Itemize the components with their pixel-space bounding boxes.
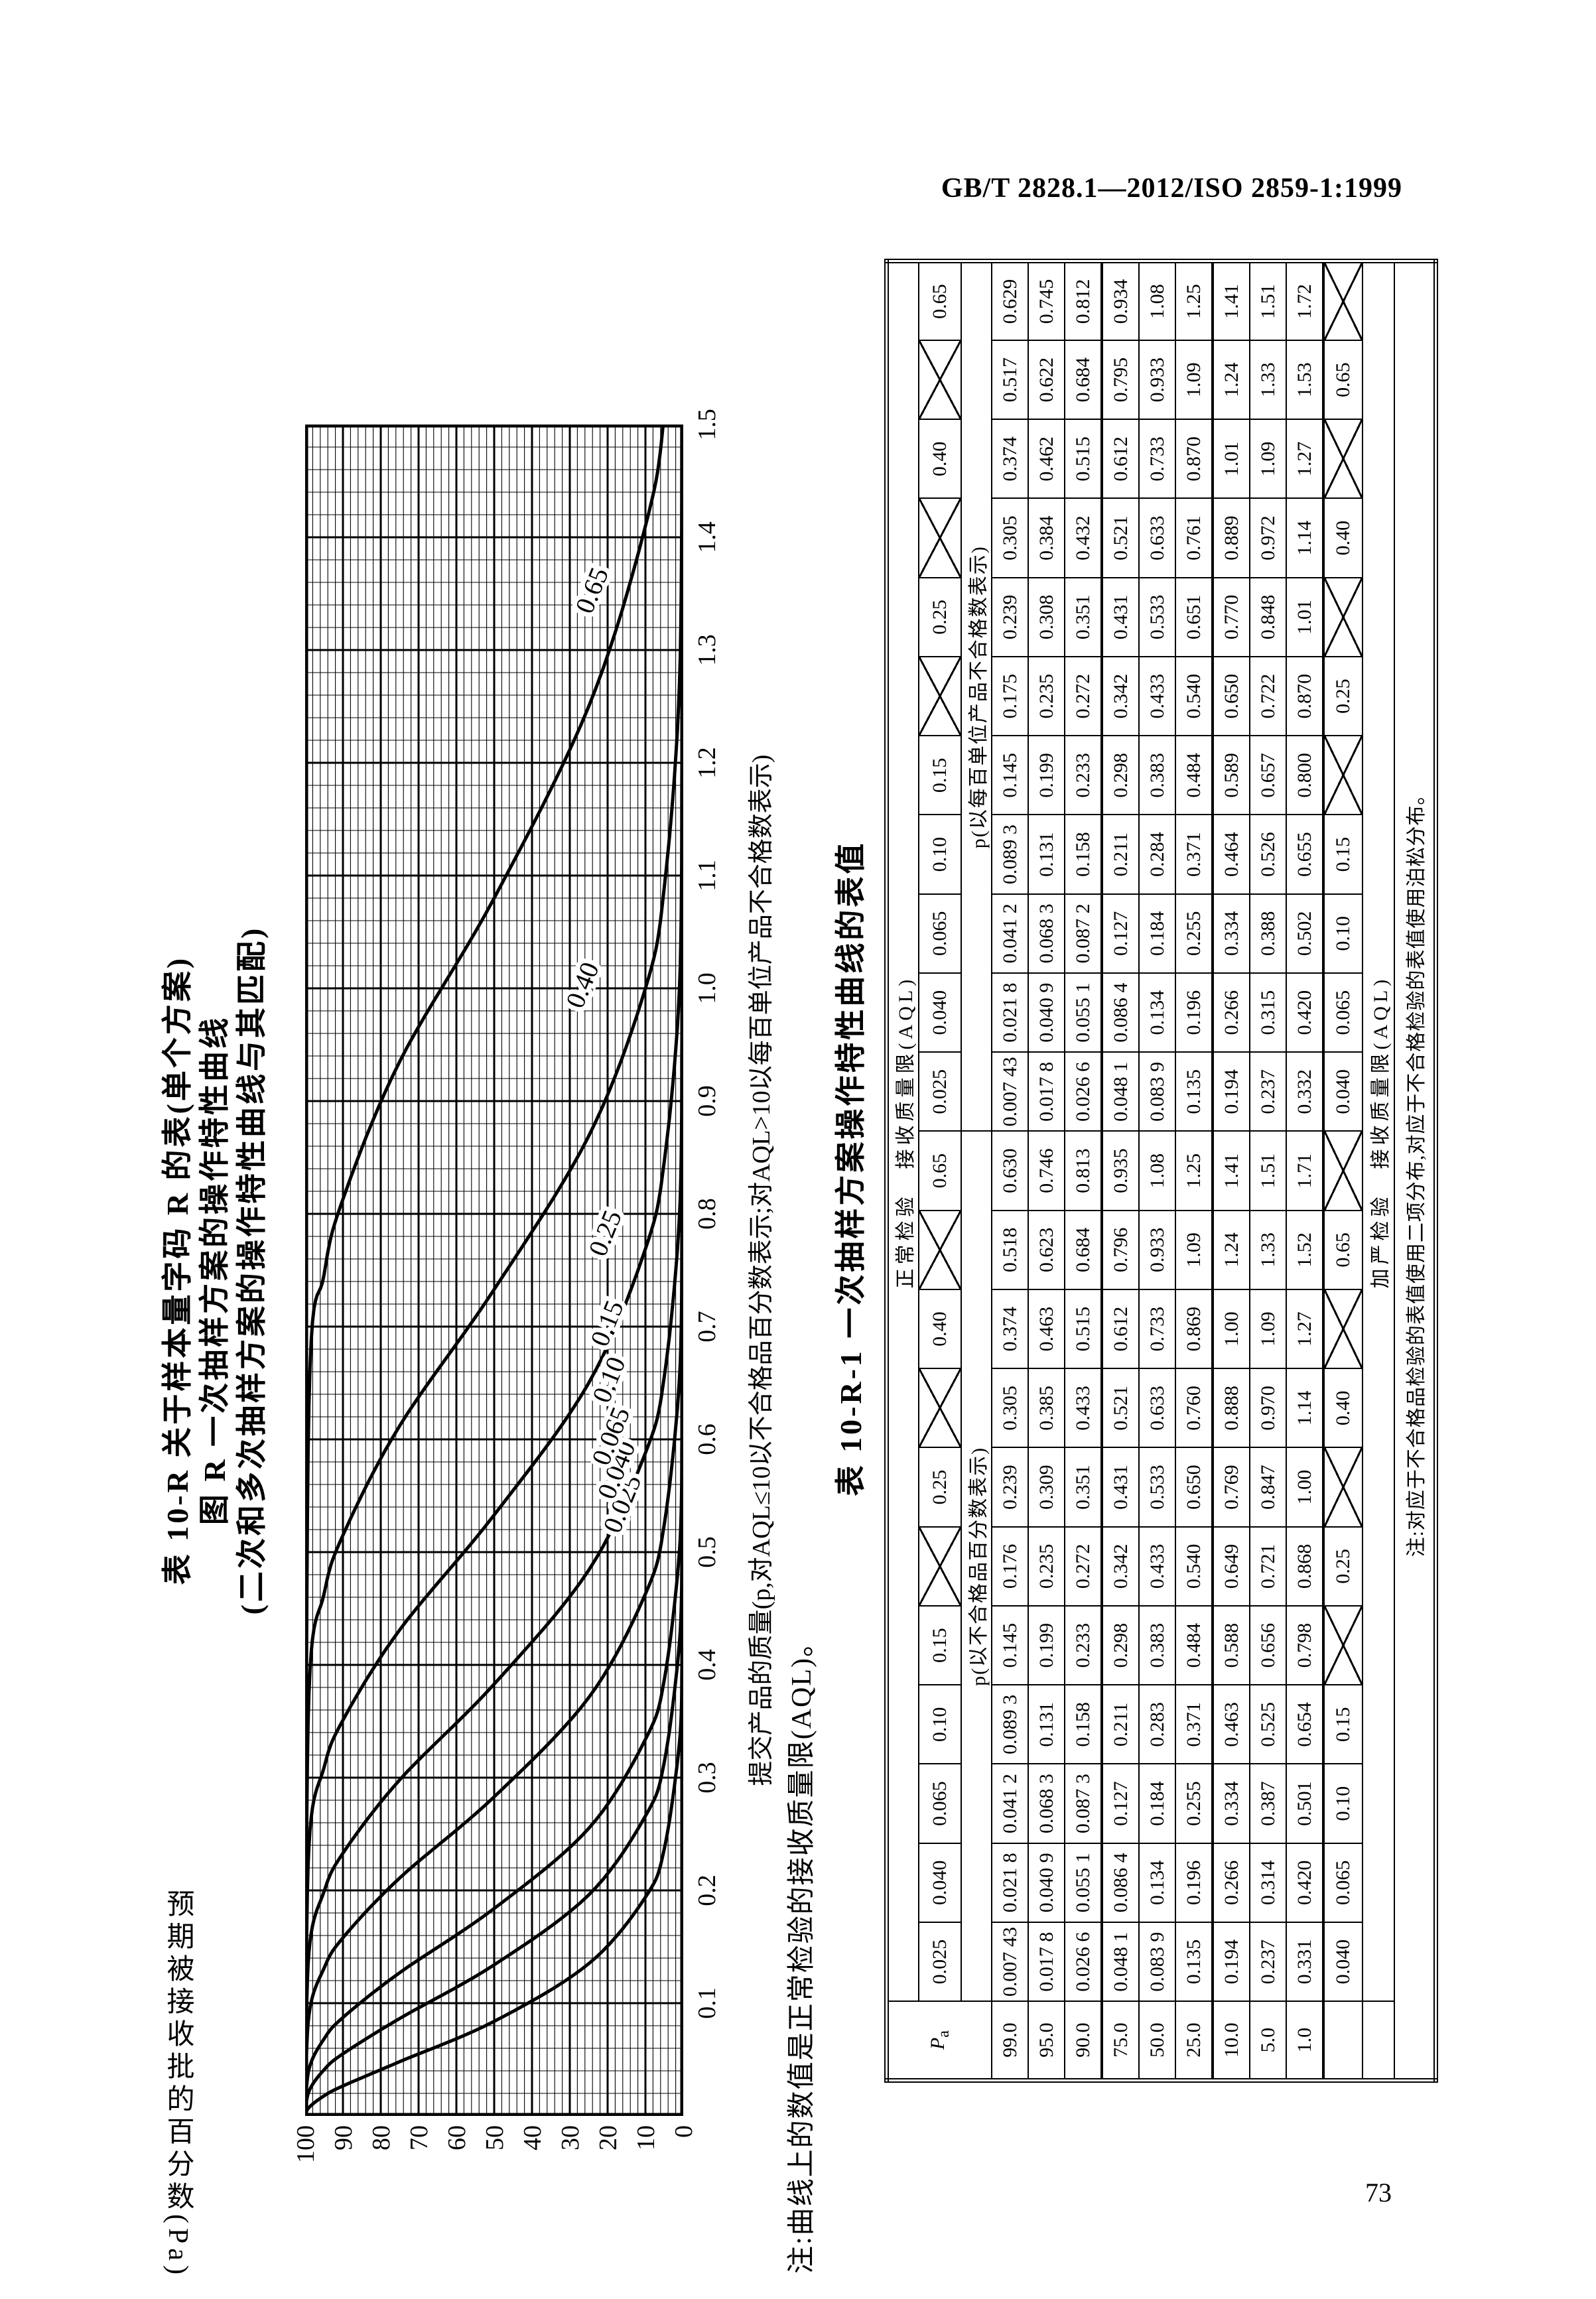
value-cell: 0.655 — [1286, 815, 1323, 894]
y-tick-label: 20 — [594, 2125, 623, 2192]
value-cell: 0.649 — [1213, 1527, 1250, 1606]
tightened-aql-cell: 0.15 — [1323, 815, 1363, 894]
value-cell: 0.383 — [1139, 1606, 1175, 1685]
table-row: 75.00.048 10.086 40.1270.2110.2980.3420.… — [1102, 261, 1139, 2081]
value-cell: 0.026 6 — [1065, 1052, 1102, 1131]
value-cell: 0.041 2 — [992, 1764, 1028, 1843]
value-cell: 0.870 — [1175, 419, 1213, 498]
pa-header-cell: Pa — [887, 2001, 992, 2080]
aql-column-header: 0.15 — [919, 736, 961, 815]
pa-value-cell: 50.0 — [1139, 2001, 1175, 2080]
pa-value-cell: 25.0 — [1175, 2001, 1213, 2080]
value-cell: 0.745 — [1028, 261, 1065, 341]
value-cell: 0.266 — [1213, 973, 1250, 1052]
value-cell: 0.184 — [1139, 1764, 1175, 1843]
tightened-aql-cell — [1323, 1606, 1363, 1685]
tightened-aql-cell: 0.65 — [1323, 340, 1363, 419]
value-cell: 1.52 — [1286, 1211, 1323, 1289]
tightened-aql-cell: 0.25 — [1323, 1527, 1363, 1606]
x-tick-label: 0.3 — [693, 1744, 722, 1811]
value-cell: 0.040 9 — [1028, 1843, 1065, 1922]
value-cell: 0.342 — [1102, 1527, 1139, 1606]
value-cell: 0.026 6 — [1065, 1922, 1102, 2001]
value-cell: 0.431 — [1102, 578, 1139, 657]
value-cell: 1.72 — [1286, 261, 1323, 341]
value-cell: 1.25 — [1175, 1132, 1213, 1211]
aql-column-header: 0.10 — [919, 815, 961, 894]
x-tick-label: 1.0 — [693, 955, 722, 1021]
value-cell: 0.420 — [1286, 1843, 1323, 1922]
value-cell: 0.800 — [1286, 736, 1323, 815]
tightened-aql-cell: 0.40 — [1323, 1368, 1363, 1447]
value-cell: 0.374 — [992, 1289, 1028, 1368]
tightened-aql-cell: 0.10 — [1323, 894, 1363, 973]
value-cell: 0.194 — [1213, 1052, 1250, 1131]
value-cell: 0.284 — [1139, 815, 1175, 894]
value-cell: 1.09 — [1250, 419, 1286, 498]
value-cell: 1.01 — [1286, 578, 1323, 657]
value-cell: 0.870 — [1286, 657, 1323, 736]
table-row: 5.00.2370.3140.3870.5250.6560.7210.8470.… — [1250, 261, 1286, 2081]
figure-title-block: 表 10-R 关于样本量字码 R 的表(单个方案) 图 R 一次抽样方案的操作特… — [159, 425, 271, 2116]
table-row: 99.00.007 430.021 80.041 20.089 30.1450.… — [992, 261, 1028, 2081]
value-cell: 0.055 1 — [1065, 973, 1102, 1052]
value-cell: 0.629 — [992, 261, 1028, 341]
normal-aql-header: 正常检验 接收质量限(AQL) — [887, 261, 919, 2002]
value-cell: 1.53 — [1286, 340, 1323, 419]
chart-x-axis-title: 提交产品的质量(p,对AQL≤10以不合格品百分数表示;对AQL>10以每百单位… — [740, 425, 777, 2116]
value-cell: 0.525 — [1250, 1685, 1286, 1764]
aql-column-header — [919, 499, 961, 578]
value-cell: 0.239 — [992, 1448, 1028, 1527]
aql-column-header: 0.15 — [919, 1606, 961, 1685]
value-cell: 0.464 — [1213, 815, 1250, 894]
value-cell: 0.517 — [992, 340, 1028, 419]
aql-column-header: 0.040 — [919, 973, 961, 1052]
pa-value-cell: 90.0 — [1065, 2001, 1102, 2080]
value-cell: 0.518 — [992, 1211, 1028, 1289]
value-cell: 0.657 — [1250, 736, 1286, 815]
value-cell: 0.433 — [1139, 657, 1175, 736]
value-cell: 0.868 — [1286, 1527, 1323, 1606]
value-cell: 0.746 — [1028, 1132, 1065, 1211]
tightened-label-row: 加严检验 接收质量限(AQL) — [1363, 261, 1394, 2081]
value-cell: 0.798 — [1286, 1606, 1323, 1685]
value-cell: 1.25 — [1175, 261, 1213, 341]
y-tick-label: 100 — [291, 2125, 320, 2192]
value-cell: 0.484 — [1175, 1606, 1213, 1685]
value-cell: 0.760 — [1175, 1368, 1213, 1447]
table-header-row-2: 0.0250.0400.0650.100.150.250.400.650.025… — [919, 261, 961, 2081]
value-cell: 0.017 8 — [1028, 1922, 1065, 2001]
value-cell: 0.795 — [1102, 340, 1139, 419]
value-cell: 1.33 — [1250, 340, 1286, 419]
value-cell: 0.283 — [1139, 1685, 1175, 1764]
value-cell: 1.41 — [1213, 1132, 1250, 1211]
value-cell: 0.331 — [1286, 1922, 1323, 2001]
value-cell: 0.651 — [1175, 578, 1213, 657]
figure-title-line3: (二次和多次抽样方案的操作特性曲线与其匹配) — [233, 425, 271, 2116]
value-cell: 0.420 — [1286, 973, 1323, 1052]
tightened-aql-cell: 0.065 — [1323, 1843, 1363, 1922]
oc-curve-chart: 0.0250.0400.0650.100.150.250.400.65 — [305, 425, 683, 2116]
value-cell: 0.515 — [1065, 1289, 1102, 1368]
x-tick-label: 0.8 — [693, 1181, 722, 1247]
value-cell: 1.51 — [1250, 261, 1286, 341]
value-cell: 1.14 — [1286, 499, 1323, 578]
value-cell: 0.374 — [992, 419, 1028, 498]
value-cell: 0.127 — [1102, 894, 1139, 973]
value-cell: 0.196 — [1175, 1843, 1213, 1922]
value-cell: 0.145 — [992, 736, 1028, 815]
tightened-aql-header: 加严检验 接收质量限(AQL) — [1363, 261, 1394, 2002]
pa-value-cell: 95.0 — [1028, 2001, 1065, 2080]
value-cell: 0.501 — [1286, 1764, 1323, 1843]
value-cell: 0.933 — [1139, 1211, 1175, 1289]
value-cell: 0.131 — [1028, 1685, 1065, 1764]
tightened-aql-cell — [1323, 419, 1363, 498]
value-cell: 0.040 9 — [1028, 973, 1065, 1052]
value-cell: 0.086 4 — [1102, 1843, 1139, 1922]
value-cell: 0.342 — [1102, 657, 1139, 736]
value-cell: 0.650 — [1175, 1448, 1213, 1527]
x-tick-label: 1.3 — [693, 617, 722, 683]
value-cell: 0.199 — [1028, 736, 1065, 815]
value-cell: 0.017 8 — [1028, 1052, 1065, 1131]
chart-plot-area: 0.0250.0400.0650.100.150.250.400.65 — [305, 425, 683, 2116]
value-cell: 0.371 — [1175, 1685, 1213, 1764]
value-cell: 0.813 — [1065, 1132, 1102, 1211]
chart-note: 注:曲线上的数值是正常检验的接收质量限(AQL)。 — [779, 1628, 819, 2274]
value-cell: 1.00 — [1213, 1289, 1250, 1368]
value-cell: 0.654 — [1286, 1685, 1323, 1764]
value-cell: 1.33 — [1250, 1211, 1286, 1289]
value-cell: 0.970 — [1250, 1368, 1286, 1447]
value-cell: 0.462 — [1028, 419, 1065, 498]
value-cell: 0.972 — [1250, 499, 1286, 578]
value-cell: 0.515 — [1065, 419, 1102, 498]
value-cell: 1.09 — [1175, 1211, 1213, 1289]
value-cell: 0.812 — [1065, 261, 1102, 341]
value-cell: 1.71 — [1286, 1132, 1323, 1211]
value-cell: 0.272 — [1065, 657, 1102, 736]
value-cell: 0.237 — [1250, 1052, 1286, 1131]
value-cell: 0.589 — [1213, 736, 1250, 815]
rotated-content: 表 10-R 关于样本量字码 R 的表(单个方案) 图 R 一次抽样方案的操作特… — [98, 183, 1418, 2279]
value-cell: 0.533 — [1139, 1448, 1175, 1527]
value-cell: 0.272 — [1065, 1527, 1102, 1606]
aql-column-header — [919, 1368, 961, 1447]
tightened-aql-cell: 0.065 — [1323, 973, 1363, 1052]
value-cell: 0.540 — [1175, 657, 1213, 736]
value-cell: 0.135 — [1175, 1922, 1213, 2001]
value-cell: 0.266 — [1213, 1843, 1250, 1922]
value-cell: 0.733 — [1139, 419, 1175, 498]
value-cell: 1.08 — [1139, 1132, 1175, 1211]
table-row: 1.00.3310.4200.5010.6540.7980.8681.001.1… — [1286, 261, 1323, 2081]
pa-value-cell: 5.0 — [1250, 2001, 1286, 2080]
aql-column-header — [919, 1527, 961, 1606]
value-cell: 0.127 — [1102, 1764, 1139, 1843]
tightened-aql-cell — [1323, 1289, 1363, 1368]
table-note-row: 注:对应于不合格品检验的表值使用二项分布,对应于不合格检验的表值使用泊松分布。 — [1394, 261, 1436, 2081]
y-tick-label: 30 — [556, 2125, 585, 2192]
x-tick-label: 0.4 — [693, 1632, 722, 1698]
value-cell: 0.588 — [1213, 1606, 1250, 1685]
value-cell: 0.385 — [1028, 1368, 1065, 1447]
value-cell: 1.01 — [1213, 419, 1250, 498]
value-cell: 1.27 — [1286, 419, 1323, 498]
value-cell: 0.848 — [1250, 578, 1286, 657]
aql-column-header: 0.025 — [919, 1052, 961, 1131]
aql-column-header: 0.065 — [919, 894, 961, 973]
document-page: GB/T 2828.1—2012/ISO 2859-1:1999 预期被接收批的… — [0, 0, 1596, 2299]
value-cell: 0.521 — [1102, 1368, 1139, 1447]
page-number: 73 — [1365, 2177, 1392, 2208]
x-tick-label: 0.5 — [693, 1519, 722, 1585]
value-cell: 0.135 — [1175, 1052, 1213, 1131]
value-cell: 0.684 — [1065, 340, 1102, 419]
value-cell: 0.305 — [992, 499, 1028, 578]
y-tick-label: 60 — [442, 2125, 472, 2192]
value-cell: 0.533 — [1139, 578, 1175, 657]
value-cell: 0.888 — [1213, 1368, 1250, 1447]
value-cell: 0.315 — [1250, 973, 1286, 1052]
value-cell: 0.433 — [1065, 1368, 1102, 1447]
value-cell: 0.211 — [1102, 815, 1139, 894]
value-cell: 0.021 8 — [992, 973, 1028, 1052]
value-cell: 0.158 — [1065, 815, 1102, 894]
table-header-row-3: p(以不合格品百分数表示)p(以每百单位产品不合格数表示) — [961, 261, 992, 2081]
aql-column-header: 0.040 — [919, 1843, 961, 1922]
value-cell: 0.089 3 — [992, 815, 1028, 894]
y-tick-label: 0 — [669, 2125, 698, 2192]
value-cell: 0.235 — [1028, 1527, 1065, 1606]
value-cell: 0.158 — [1065, 1685, 1102, 1764]
value-cell: 0.305 — [992, 1368, 1028, 1447]
y-tick-label: 10 — [632, 2125, 661, 2192]
aql-column-header — [919, 657, 961, 736]
value-cell: 0.055 1 — [1065, 1843, 1102, 1922]
value-cell: 0.332 — [1286, 1052, 1323, 1131]
value-cell: 0.623 — [1028, 1211, 1065, 1289]
section-left-label: p(以不合格品百分数表示) — [961, 1132, 992, 2002]
value-cell: 0.770 — [1213, 578, 1250, 657]
value-cell: 0.048 1 — [1102, 1922, 1139, 2001]
value-cell: 0.769 — [1213, 1448, 1250, 1527]
value-cell: 0.484 — [1175, 736, 1213, 815]
value-cell: 1.24 — [1213, 1211, 1250, 1289]
aql-column-header: 0.10 — [919, 1685, 961, 1764]
value-cell: 0.308 — [1028, 578, 1065, 657]
value-cell: 0.431 — [1102, 1448, 1139, 1527]
y-tick-label: 50 — [480, 2125, 509, 2192]
value-cell: 0.521 — [1102, 499, 1139, 578]
x-tick-label: 0.7 — [693, 1293, 722, 1360]
x-tick-label: 1.1 — [693, 842, 722, 909]
table-row: 50.00.083 90.1340.1840.2830.3830.4330.53… — [1139, 261, 1175, 2081]
value-cell: 0.630 — [992, 1132, 1028, 1211]
value-cell: 0.175 — [992, 657, 1028, 736]
value-cell: 0.021 8 — [992, 1843, 1028, 1922]
value-cell: 0.007 43 — [992, 1922, 1028, 2001]
value-cell: 0.650 — [1213, 657, 1250, 736]
value-cell: 0.633 — [1139, 1368, 1175, 1447]
value-cell: 0.194 — [1213, 1922, 1250, 2001]
value-cell: 0.722 — [1250, 657, 1286, 736]
y-tick-label: 70 — [405, 2125, 434, 2192]
pa-value-cell: 75.0 — [1102, 2001, 1139, 2080]
value-cell: 0.334 — [1213, 894, 1250, 973]
value-cell: 0.255 — [1175, 1764, 1213, 1843]
value-cell: 0.383 — [1139, 736, 1175, 815]
figure-title-line2: 图 R 一次抽样方案的操作特性曲线 — [196, 425, 233, 2116]
value-cell: 0.298 — [1102, 1606, 1139, 1685]
table-title: 表 10-R-1 一次抽样方案操作特性曲线的表值 — [827, 254, 870, 2083]
table-row: 95.00.017 80.040 90.068 30.1310.1990.235… — [1028, 261, 1065, 2081]
value-cell: 0.087 2 — [1065, 894, 1102, 973]
value-cell: 0.233 — [1065, 736, 1102, 815]
value-cell: 0.889 — [1213, 499, 1250, 578]
aql-column-header — [919, 340, 961, 419]
value-cell: 0.334 — [1213, 1764, 1250, 1843]
aql-column-header: 0.25 — [919, 578, 961, 657]
y-tick-label: 90 — [329, 2125, 358, 2192]
tightened-aql-cell: 0.10 — [1323, 1764, 1363, 1843]
aql-column-header: 0.025 — [919, 1922, 961, 2001]
pa-value-cell: 99.0 — [992, 2001, 1028, 2080]
value-cell: 0.255 — [1175, 894, 1213, 973]
value-cell: 0.131 — [1028, 815, 1065, 894]
aql-column-header: 0.40 — [919, 419, 961, 498]
value-cell: 0.211 — [1102, 1685, 1139, 1764]
y-tick-label: 80 — [367, 2125, 396, 2192]
value-cell: 0.761 — [1175, 499, 1213, 578]
value-cell: 0.196 — [1175, 973, 1213, 1052]
x-tick-label: 1.5 — [693, 391, 722, 458]
value-cell: 0.540 — [1175, 1527, 1213, 1606]
y-tick-label: 40 — [518, 2125, 547, 2192]
figure-title-line1: 表 10-R 关于样本量字码 R 的表(单个方案) — [159, 425, 196, 2116]
value-cell: 0.384 — [1028, 499, 1065, 578]
aql-column-header: 0.25 — [919, 1448, 961, 1527]
value-cell: 0.935 — [1102, 1132, 1139, 1211]
value-cell: 0.622 — [1028, 340, 1065, 419]
x-tick-label: 0.1 — [693, 1970, 722, 2036]
value-cell: 0.463 — [1213, 1685, 1250, 1764]
value-cell: 0.656 — [1250, 1606, 1286, 1685]
x-tick-label: 1.2 — [693, 730, 722, 796]
value-cell: 0.351 — [1065, 578, 1102, 657]
value-cell: 0.388 — [1250, 894, 1286, 973]
tightened-aql-row: 0.0400.0650.100.150.250.400.650.0400.065… — [1323, 261, 1363, 2081]
table-row: 10.00.1940.2660.3340.4630.5880.6490.7690… — [1213, 261, 1250, 2081]
aql-column-header: 0.65 — [919, 261, 961, 341]
svg-text:0.10: 0.10 — [586, 1352, 632, 1407]
tightened-aql-cell: 0.25 — [1323, 657, 1363, 736]
value-cell: 0.847 — [1250, 1448, 1286, 1527]
table-row: 25.00.1350.1960.2550.3710.4840.5400.6500… — [1175, 261, 1213, 2081]
value-cell: 0.134 — [1139, 973, 1175, 1052]
value-cell: 0.869 — [1175, 1289, 1213, 1368]
value-cell: 0.068 3 — [1028, 894, 1065, 973]
value-cell: 1.09 — [1175, 340, 1213, 419]
value-cell: 0.298 — [1102, 736, 1139, 815]
value-cell: 0.633 — [1139, 499, 1175, 578]
value-cell: 0.145 — [992, 1606, 1028, 1685]
value-cell: 0.199 — [1028, 1606, 1065, 1685]
value-cell: 1.24 — [1213, 340, 1250, 419]
value-cell: 1.27 — [1286, 1289, 1323, 1368]
value-cell: 0.526 — [1250, 815, 1286, 894]
value-cell: 0.502 — [1286, 894, 1323, 973]
tightened-aql-cell — [1323, 578, 1363, 657]
value-cell: 0.083 9 — [1139, 1052, 1175, 1131]
value-cell: 0.934 — [1102, 261, 1139, 341]
tightened-aql-cell: 0.040 — [1323, 1052, 1363, 1131]
x-tick-label: 1.4 — [693, 504, 722, 570]
pa-value-cell: 10.0 — [1213, 2001, 1250, 2080]
value-cell: 0.433 — [1139, 1527, 1175, 1606]
table-note: 注:对应于不合格品检验的表值使用二项分布,对应于不合格检验的表值使用泊松分布。 — [1394, 261, 1436, 2081]
tightened-aql-cell: 0.65 — [1323, 1211, 1363, 1289]
value-cell: 0.176 — [992, 1527, 1028, 1606]
value-cell: 0.612 — [1102, 1289, 1139, 1368]
value-cell: 1.09 — [1250, 1289, 1286, 1368]
value-cell: 0.612 — [1102, 419, 1139, 498]
value-cell: 1.14 — [1286, 1368, 1323, 1447]
curve-label: 0.10 — [586, 1352, 632, 1407]
x-tick-label: 0.6 — [693, 1406, 722, 1473]
value-cell: 0.235 — [1028, 657, 1065, 736]
value-cell: 0.387 — [1250, 1764, 1286, 1843]
value-cell: 0.933 — [1139, 340, 1175, 419]
value-cell: 0.721 — [1250, 1527, 1286, 1606]
tightened-aql-cell: 0.040 — [1323, 1922, 1363, 2001]
value-cell: 0.684 — [1065, 1211, 1102, 1289]
aql-column-header: 0.40 — [919, 1289, 961, 1368]
value-cell: 0.237 — [1250, 1922, 1286, 2001]
value-cell: 0.733 — [1139, 1289, 1175, 1368]
value-cell: 0.083 9 — [1139, 1922, 1175, 2001]
value-cell: 0.086 4 — [1102, 973, 1139, 1052]
value-cell: 0.048 1 — [1102, 1052, 1139, 1131]
value-cell: 0.184 — [1139, 894, 1175, 973]
value-cell: 0.233 — [1065, 1606, 1102, 1685]
value-cell: 1.08 — [1139, 261, 1175, 341]
oc-values-table: Pa正常检验 接收质量限(AQL)0.0250.0400.0650.100.15… — [884, 259, 1438, 2083]
value-cell: 0.796 — [1102, 1211, 1139, 1289]
value-cell: 0.041 2 — [992, 894, 1028, 973]
aql-column-header: 0.065 — [919, 1764, 961, 1843]
value-cell: 1.00 — [1286, 1448, 1323, 1527]
value-cell: 0.314 — [1250, 1843, 1286, 1922]
tightened-aql-cell: 0.40 — [1323, 499, 1363, 578]
value-cell: 0.432 — [1065, 499, 1102, 578]
table-row: 90.00.026 60.055 10.087 30.1580.2330.272… — [1065, 261, 1102, 2081]
tightened-aql-cell — [1323, 1448, 1363, 1527]
value-cell: 0.089 3 — [992, 1685, 1028, 1764]
aql-column-header: 0.65 — [919, 1132, 961, 1211]
value-cell: 0.134 — [1139, 1843, 1175, 1922]
value-cell: 0.068 3 — [1028, 1764, 1065, 1843]
value-cell: 0.239 — [992, 578, 1028, 657]
aql-column-header — [919, 1211, 961, 1289]
tightened-aql-cell: 0.15 — [1323, 1685, 1363, 1764]
value-cell: 0.007 43 — [992, 1052, 1028, 1131]
value-cell: 1.41 — [1213, 261, 1250, 341]
value-cell: 0.309 — [1028, 1448, 1065, 1527]
